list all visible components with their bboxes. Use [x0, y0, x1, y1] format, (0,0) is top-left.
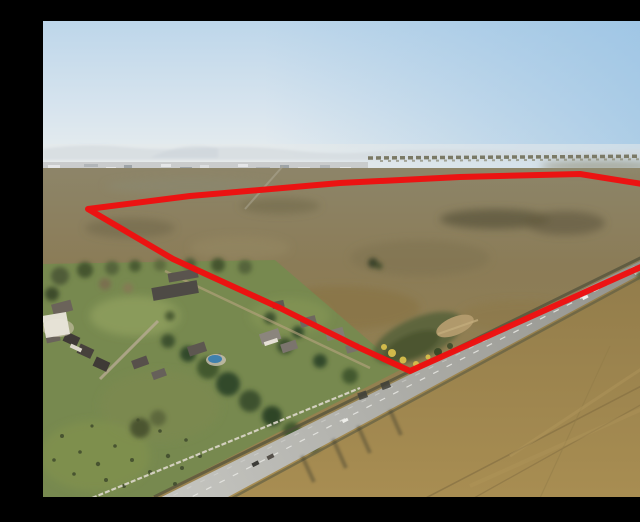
swimming-pool — [208, 355, 222, 363]
letterbox-bottom — [40, 497, 640, 506]
aerial-land-parcel-photo — [40, 16, 640, 506]
letterbox-top — [40, 16, 640, 21]
letterbox-left — [40, 16, 43, 506]
photo-canvas — [40, 16, 640, 506]
